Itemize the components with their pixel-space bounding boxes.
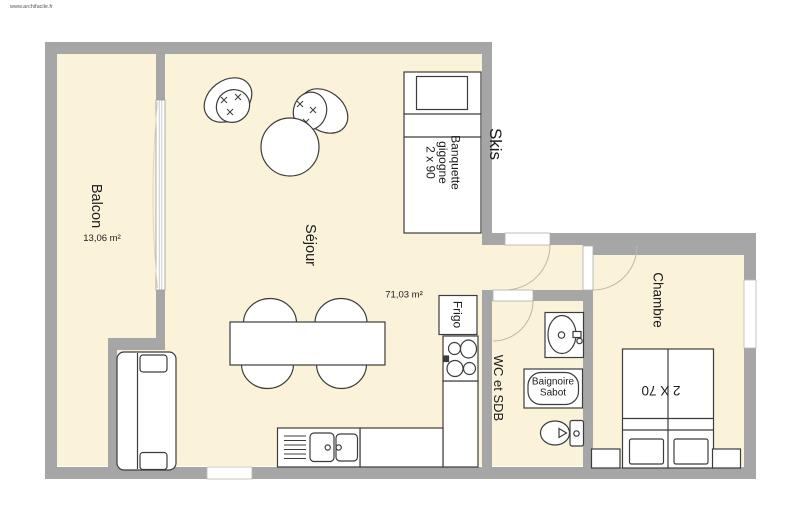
toilet: [541, 421, 584, 447]
skis-label: Skis: [486, 128, 505, 160]
chambre-door-gap: [583, 246, 593, 290]
wall-top: [45, 42, 492, 54]
sofa: [117, 352, 176, 470]
entry-door-gap: [505, 233, 550, 245]
watermark-text: www.archifacile.fr: [9, 4, 53, 10]
balcon-area-label: 13,06 m²: [83, 233, 121, 244]
burner-small-2: [464, 363, 476, 375]
chambre-window: [744, 280, 756, 348]
toilet-flush-button: [574, 431, 579, 436]
wall-sejour-wc: [482, 290, 492, 467]
wall-balcon-jog-v: [108, 338, 117, 468]
banquette-label-line3: 2 x 90: [423, 146, 437, 179]
baignoire-label-line1: Baignoire: [532, 377, 575, 388]
sink-tap-left: [325, 445, 330, 450]
wall-chambre-top: [583, 243, 756, 255]
basin-tap: [573, 332, 581, 338]
sejour-label: Séjour: [302, 224, 318, 266]
kitchen-sink: [278, 428, 361, 467]
floorplan-svg: Balcon 13,06 m² Séjour 71,03 m² Chambre …: [0, 0, 800, 526]
burner-large-2: [447, 361, 463, 377]
basin-tap-handle: [577, 338, 582, 343]
burner-large-1: [461, 340, 477, 358]
wall-left: [45, 42, 57, 479]
sink-tap-right: [336, 445, 341, 450]
nightstand-left: [592, 449, 621, 468]
wall-right: [744, 233, 756, 479]
wc-sdb-label: WC et SDB: [491, 355, 506, 421]
nightstand-right: [713, 449, 741, 468]
kitchen-counter-vertical: [443, 381, 478, 467]
baignoire-label-line2: Sabot: [540, 388, 566, 399]
balcon-label: Balcon: [88, 184, 104, 228]
chambre-label: Chambre: [650, 272, 665, 328]
kitchen-counter-horizontal: [360, 428, 443, 467]
burner-small-1: [449, 343, 461, 355]
floorplan-canvas: Balcon 13,06 m² Séjour 71,03 m² Chambre …: [0, 0, 800, 526]
pillow-left: [630, 439, 664, 464]
stove: [443, 336, 478, 381]
round-table: [261, 118, 319, 176]
sejour-area-label: 71,03 m²: [385, 290, 423, 301]
pillow-right: [674, 439, 708, 464]
sejour-bottom-window: [207, 467, 252, 479]
washbasin: [545, 313, 584, 358]
fridge-label: Frigo: [450, 301, 464, 329]
bed-size-label: 2 X 70: [641, 383, 680, 398]
stove-knob: [444, 356, 449, 362]
dining-table: [230, 322, 385, 365]
wc-door-gap: [493, 290, 533, 301]
double-bed: [623, 349, 714, 468]
